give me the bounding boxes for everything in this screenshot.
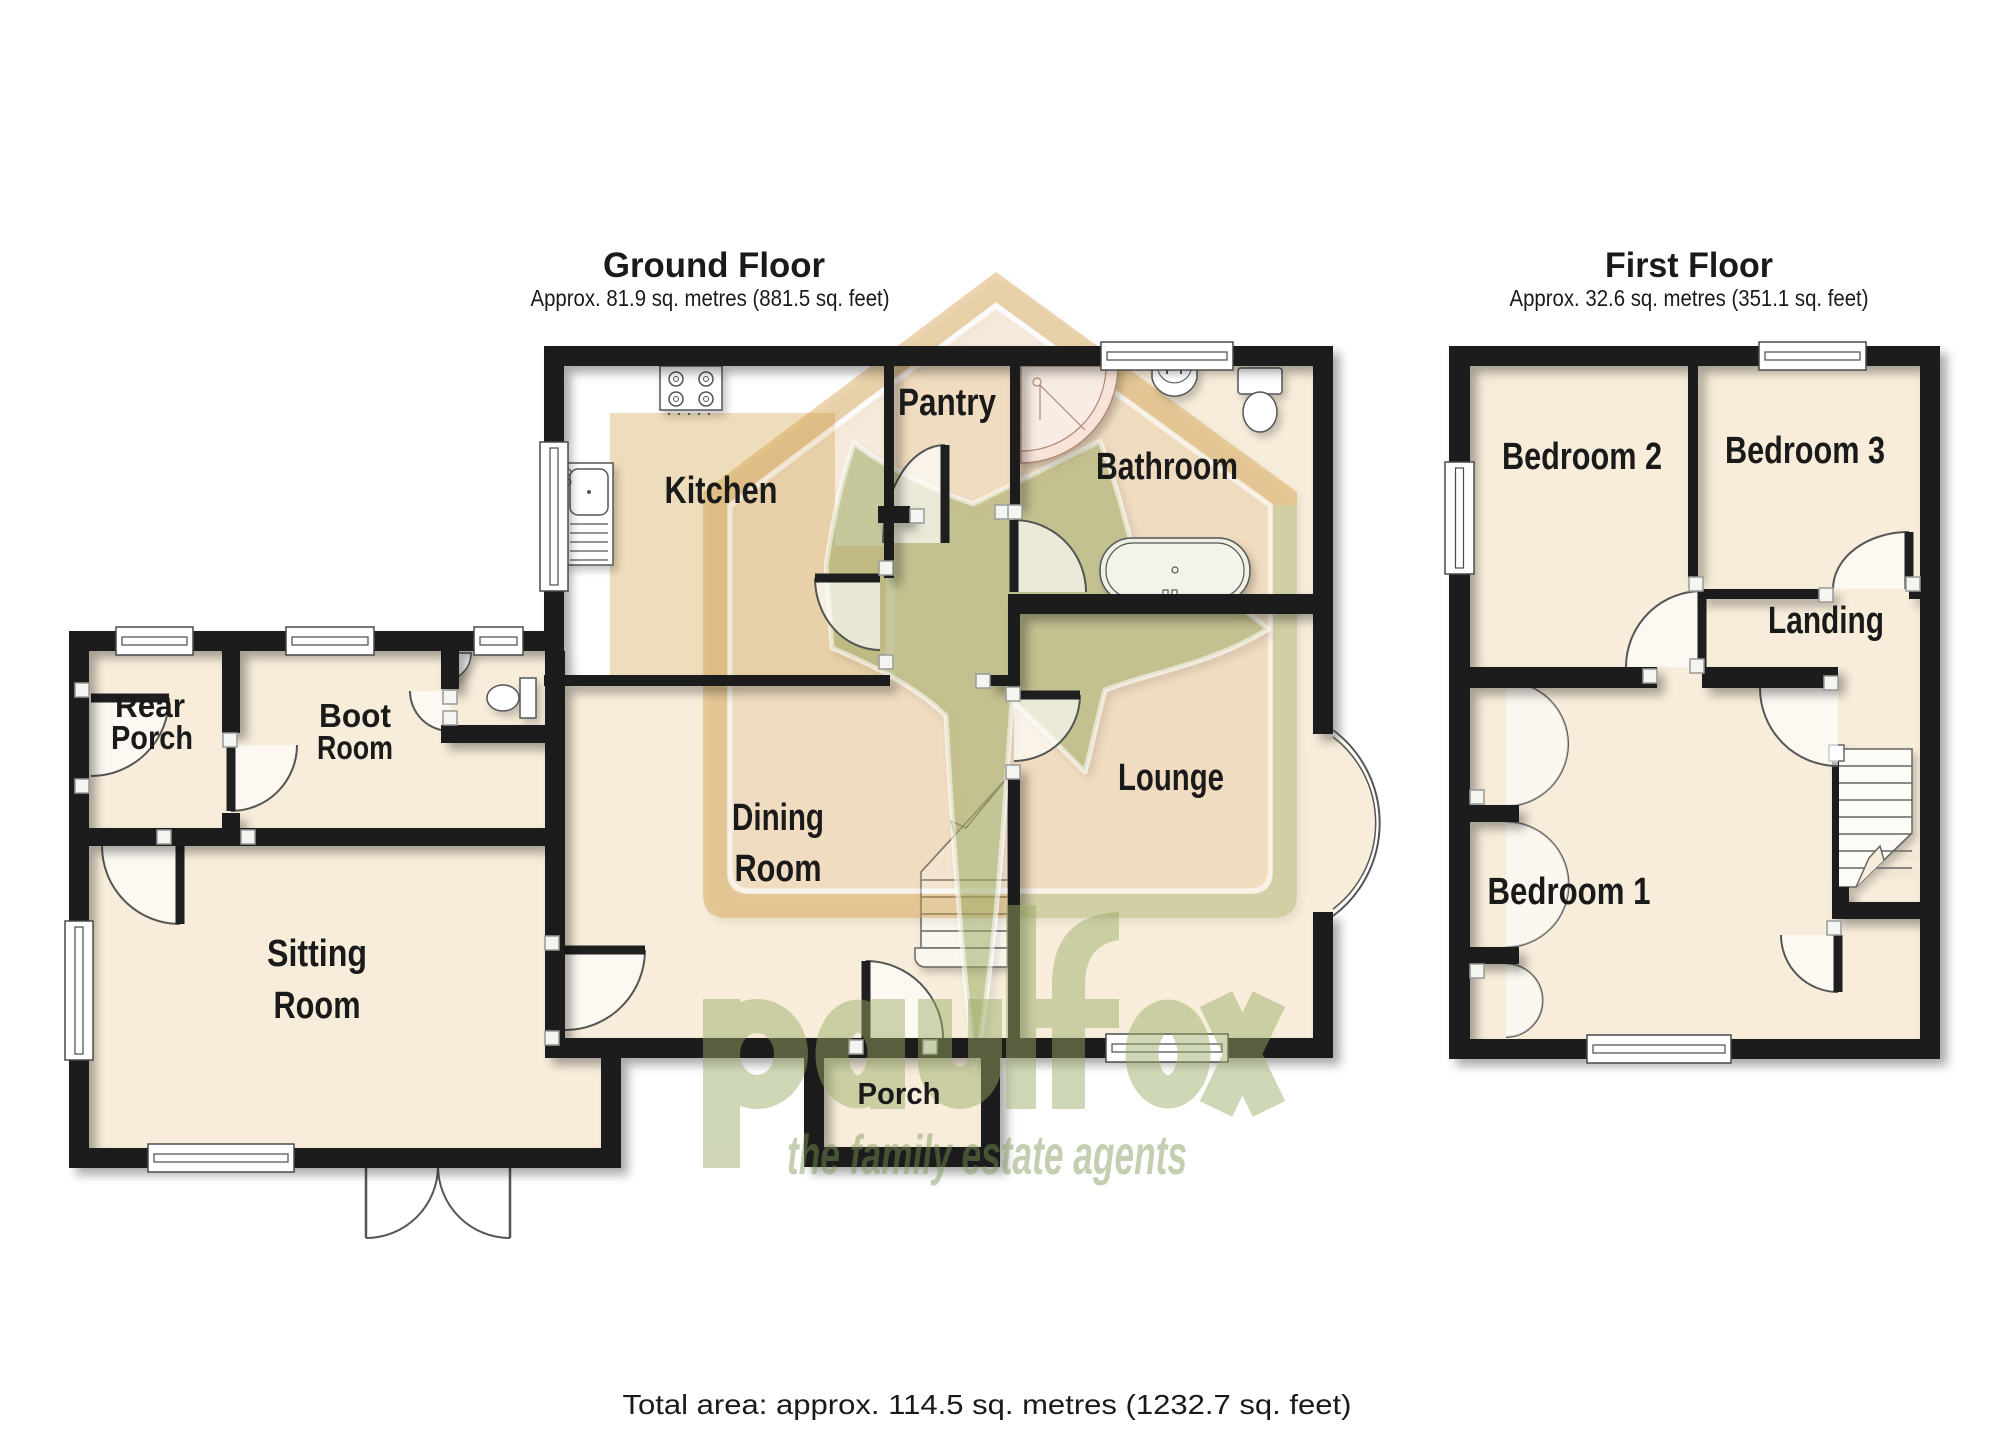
svg-text:Room: Room	[317, 729, 393, 766]
svg-text:Bedroom 2: Bedroom 2	[1502, 436, 1662, 478]
svg-text:Bathroom: Bathroom	[1096, 446, 1238, 488]
svg-text:Ground Floor: Ground Floor	[603, 246, 825, 285]
svg-text:Room: Room	[274, 985, 361, 1027]
svg-text:Kitchen: Kitchen	[665, 470, 778, 512]
svg-text:Bedroom 1: Bedroom 1	[1488, 871, 1651, 913]
svg-text:Sitting: Sitting	[267, 933, 367, 975]
svg-text:First Floor: First Floor	[1605, 246, 1773, 285]
svg-text:Porch: Porch	[111, 719, 193, 756]
svg-text:Dining: Dining	[732, 797, 824, 839]
svg-text:Room: Room	[735, 848, 822, 890]
svg-text:the family estate agents: the family estate agents	[787, 1123, 1187, 1186]
svg-text:Porch: Porch	[858, 1076, 941, 1111]
svg-text:Approx. 32.6 sq. metres (351.1: Approx. 32.6 sq. metres (351.1 sq. feet)	[1510, 285, 1869, 311]
svg-text:Approx. 81.9 sq. metres (881.5: Approx. 81.9 sq. metres (881.5 sq. feet)	[531, 285, 890, 311]
svg-text:Landing: Landing	[1768, 600, 1884, 642]
svg-text:Pantry: Pantry	[898, 382, 996, 424]
svg-text:Lounge: Lounge	[1118, 757, 1224, 799]
svg-text:Bedroom 3: Bedroom 3	[1725, 430, 1885, 472]
svg-text:Total area: approx. 114.5 sq.: Total area: approx. 114.5 sq. metres (12…	[623, 1389, 1352, 1420]
